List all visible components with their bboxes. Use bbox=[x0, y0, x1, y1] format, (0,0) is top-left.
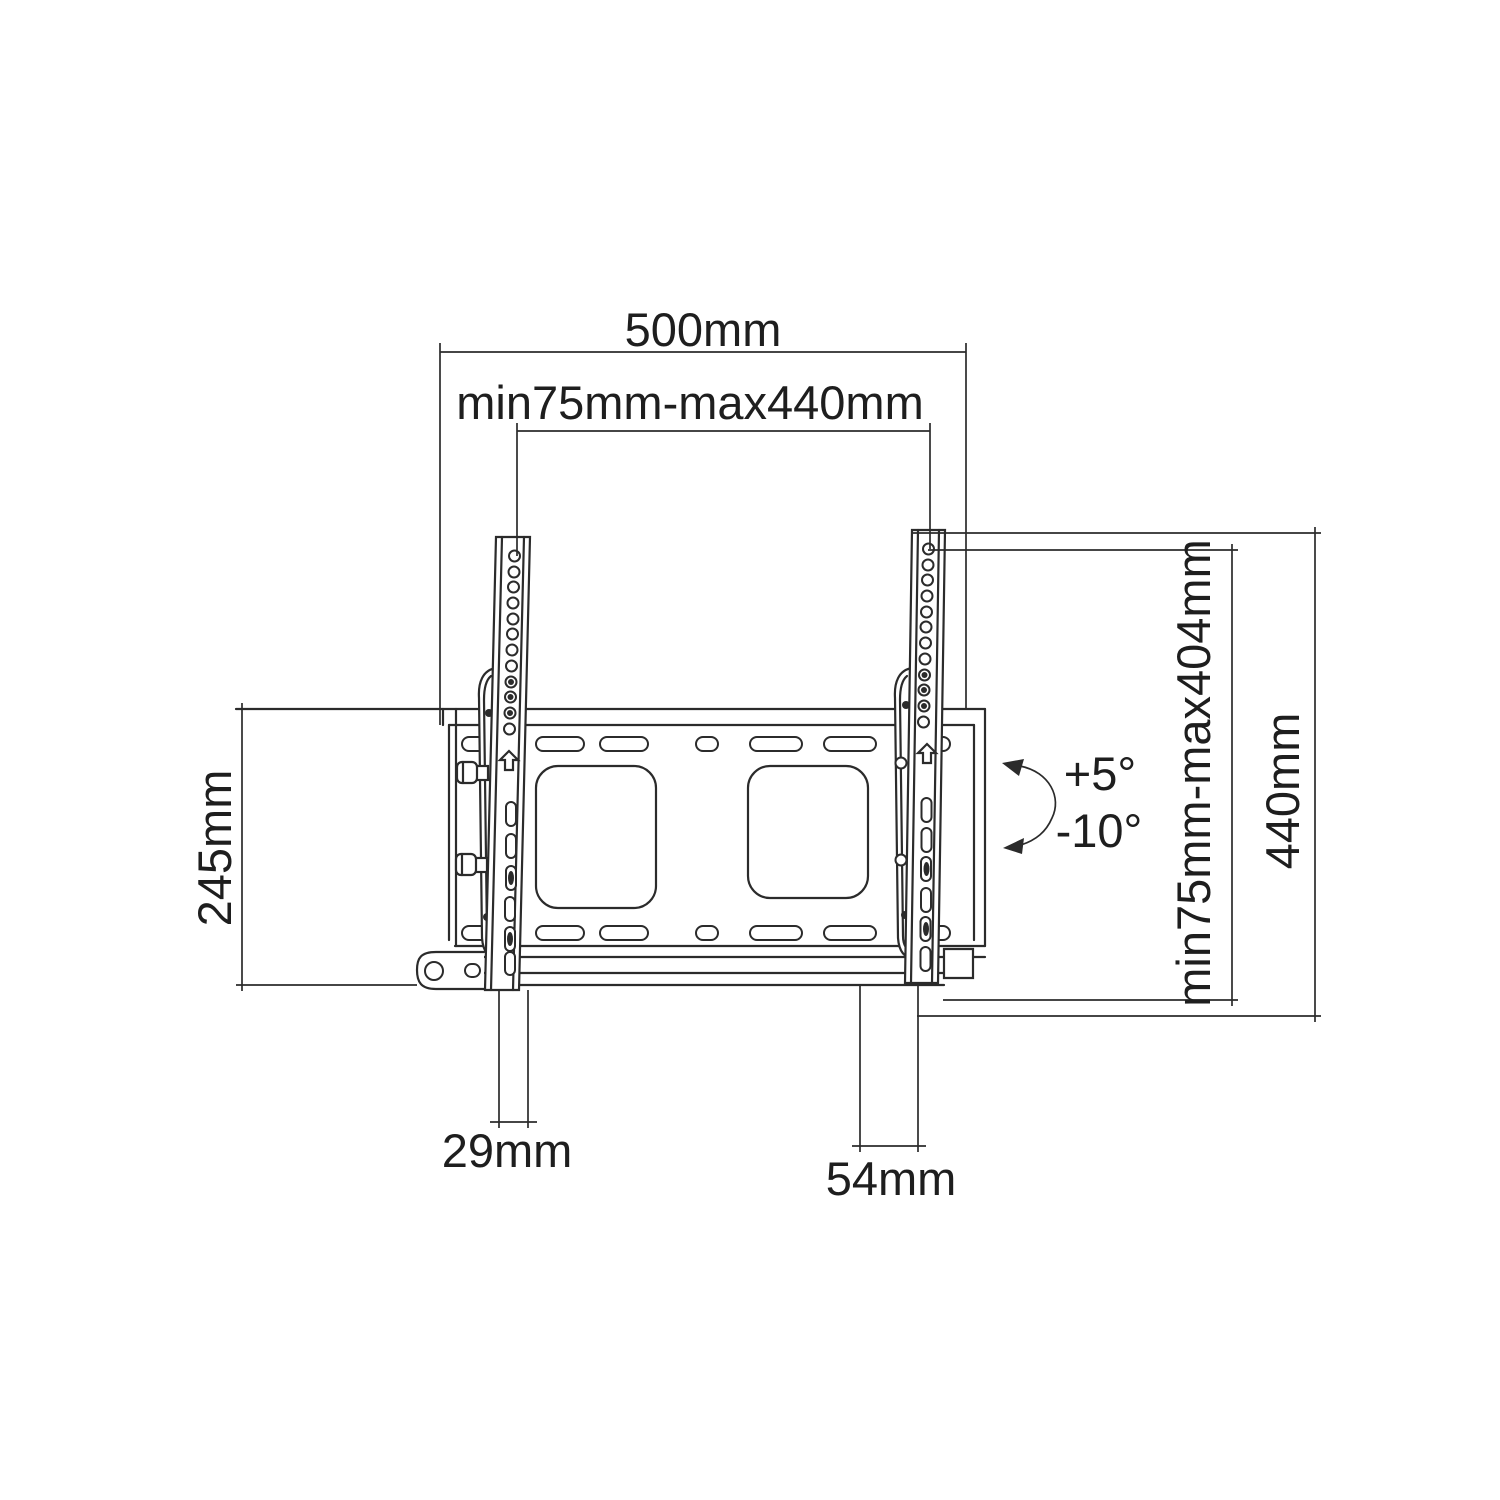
tilt-lock-knob-lower bbox=[456, 854, 487, 875]
wall-plate bbox=[236, 709, 985, 989]
tilt-arrowhead-top bbox=[1002, 759, 1024, 776]
diagram-page: 500mm min75mm-max440mm 245mm min75mm-max… bbox=[0, 0, 1500, 1500]
bar-end-cap-right bbox=[944, 949, 973, 978]
vesa-cutout-left bbox=[536, 766, 656, 908]
arm-pivot-hole-lower bbox=[896, 855, 907, 866]
wall-plate-left-edge bbox=[449, 709, 456, 946]
vesa-cutout-right bbox=[748, 766, 868, 898]
mount-width-range-label: min75mm-max440mm bbox=[456, 376, 923, 429]
dimension-plate-height: 245mm bbox=[188, 703, 417, 991]
arm-pivot-hole-upper bbox=[896, 758, 907, 769]
plate-height-label: 245mm bbox=[188, 770, 241, 927]
tilt-arrowhead-bottom bbox=[1003, 838, 1024, 854]
tilt-angle-annotation: +5° -10° bbox=[1002, 747, 1142, 857]
tilt-lock-knob-upper bbox=[457, 762, 488, 783]
mount-height-range-label: min75mm-max404mm bbox=[1167, 539, 1220, 1006]
dimension-rail-depth: 29mm bbox=[442, 990, 573, 1177]
tilt-down-label: -10° bbox=[1056, 804, 1143, 857]
wall-plate-right-edge bbox=[974, 709, 985, 946]
tilt-arc bbox=[1020, 766, 1055, 845]
tilt-up-label: +5° bbox=[1064, 747, 1136, 800]
wall-plate-slots-bottom bbox=[462, 926, 950, 940]
wall-plate-slots-top bbox=[462, 737, 950, 751]
tv-mount-diagram: 500mm min75mm-max440mm 245mm min75mm-max… bbox=[0, 0, 1500, 1500]
rail-depth-label: 29mm bbox=[442, 1124, 573, 1177]
right-vesa-rail bbox=[905, 530, 945, 983]
bottom-left-bracket-foot bbox=[417, 952, 484, 989]
foot-hole bbox=[425, 962, 443, 980]
mount-depth-label: 54mm bbox=[826, 1152, 957, 1205]
overall-height-label: 440mm bbox=[1256, 713, 1309, 870]
dimension-mount-width-range: min75mm-max440mm bbox=[456, 376, 930, 556]
overall-width-label: 500mm bbox=[625, 303, 782, 356]
foot-slot bbox=[465, 964, 480, 977]
left-vesa-rail bbox=[485, 537, 530, 990]
